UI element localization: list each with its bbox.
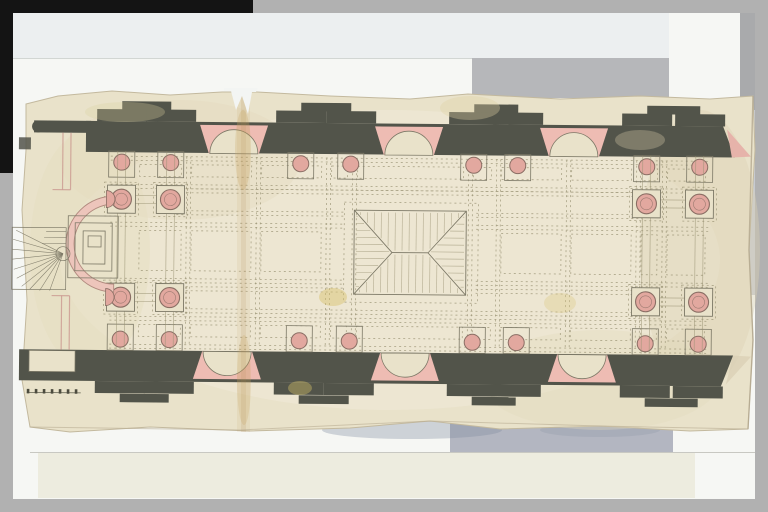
photo-of-architectural-drawing <box>0 0 768 512</box>
floor-plan-drawing <box>0 0 768 512</box>
